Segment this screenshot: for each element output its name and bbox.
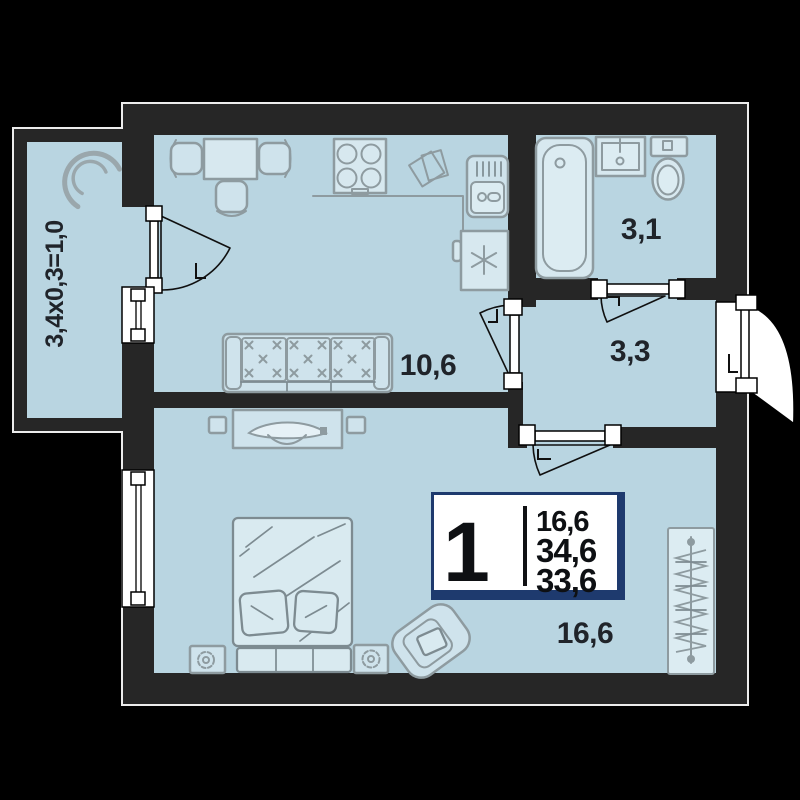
speaker-icon (209, 417, 226, 433)
floor-plan-drawing: 3,4х0,3=1,0 10,6 3,1 3,3 16,6 1 16,6 34,… (0, 0, 800, 800)
label-kitchen-living-area: 10,6 (400, 349, 456, 382)
badge-divider (523, 506, 527, 586)
balcony-window (122, 287, 154, 343)
wardrobe-hangers-icon (668, 528, 714, 674)
nightstand-icon (190, 646, 225, 673)
tv-stand-icon (233, 410, 342, 448)
bathtub-icon (536, 138, 593, 278)
sofa-icon (223, 334, 392, 392)
label-bedroom-area: 16,6 (557, 617, 613, 650)
bedroom-window (122, 470, 154, 607)
washbasin-icon (596, 137, 645, 176)
stove-icon (334, 139, 386, 194)
toilet-icon (651, 137, 687, 200)
nightstand-icon (354, 645, 388, 673)
kitchen-sink-icon (467, 156, 508, 217)
floor-plan-canvas: 3,4х0,3=1,0 10,6 3,1 3,3 16,6 1 16,6 34,… (0, 0, 800, 800)
badge-reduced-area: 33,6 (536, 562, 597, 599)
pillow-icon (294, 591, 339, 634)
speaker-icon (347, 417, 365, 433)
badge-room-count: 1 (443, 505, 489, 599)
pillow-icon (239, 590, 288, 636)
label-balcony-formula: 3,4х0,3=1,0 (41, 220, 69, 347)
dining-table-icon (204, 139, 257, 179)
area-badge: 1 16,6 34,6 33,6 (431, 492, 625, 600)
bed-icon (233, 518, 352, 672)
label-bathroom-area: 3,1 (621, 213, 661, 246)
fridge-icon (453, 231, 508, 290)
label-hallway-area: 3,3 (610, 335, 650, 368)
